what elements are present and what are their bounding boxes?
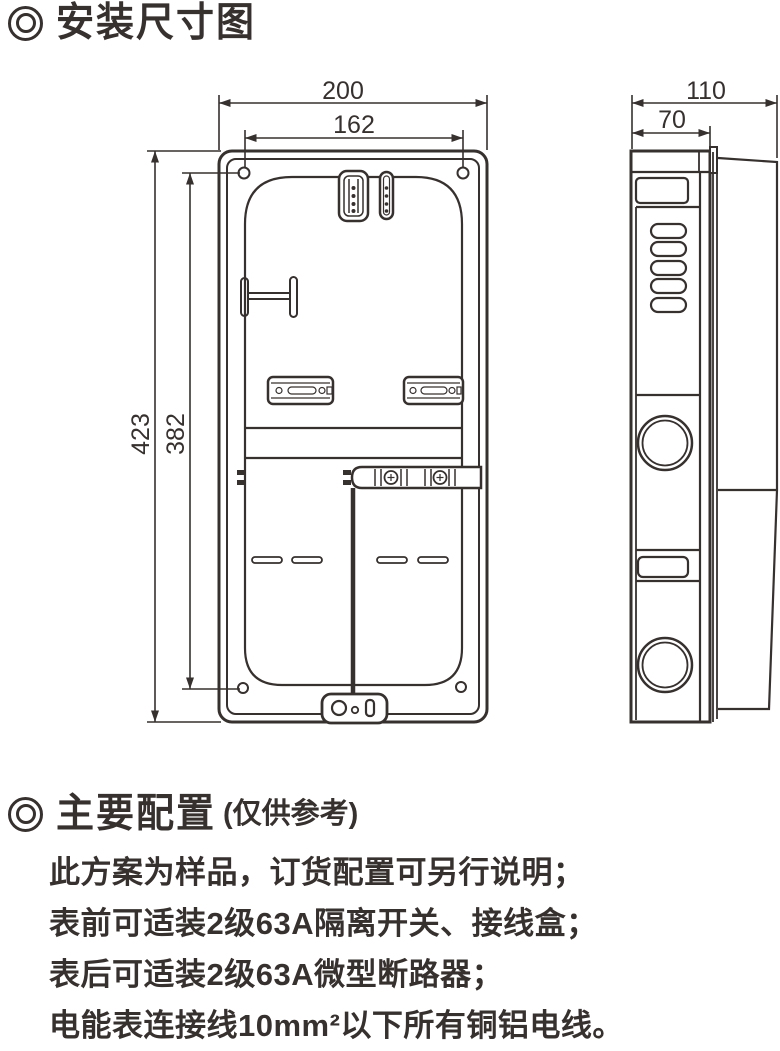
din-rail-bracket-left bbox=[268, 377, 333, 404]
terminal-rail bbox=[352, 467, 481, 488]
side-slot bbox=[638, 557, 688, 577]
config-notes: 此方案为样品，订货配置可另行说明； 表前可适装2级63A隔离开关、接线盒； 表后… bbox=[49, 847, 749, 1051]
config-title: 主要配置 bbox=[56, 794, 216, 834]
dim-front-width-inner: 162 bbox=[333, 111, 375, 139]
cable-gland-bottom bbox=[638, 638, 692, 692]
installation-drawing: 200 162 423 382 110 70 bbox=[0, 0, 780, 780]
cable-gland-top bbox=[638, 416, 692, 470]
dim-front-height-inner: 382 bbox=[162, 413, 190, 455]
dim-side-depth-front: 70 bbox=[658, 106, 686, 134]
side-vents bbox=[651, 224, 686, 312]
back-box bbox=[718, 158, 777, 709]
top-cable-knockout-large bbox=[339, 171, 368, 221]
meter-hanger bbox=[241, 277, 297, 317]
dim-side-depth-outer: 110 bbox=[686, 77, 726, 105]
sealing-tab bbox=[322, 694, 387, 723]
side-view bbox=[631, 147, 777, 722]
dim-front-width-outer: 200 bbox=[322, 77, 364, 105]
top-cable-knockout-small bbox=[380, 172, 393, 219]
config-line-3: 表后可适装2级63A微型断路器； bbox=[49, 949, 749, 1000]
config-line-2: 表前可适装2级63A隔离开关、接线盒； bbox=[49, 898, 749, 949]
config-title-row: 主要配置 (仅供参考) bbox=[8, 795, 358, 833]
config-title-note: (仅供参考) bbox=[223, 800, 358, 829]
config-line-4: 电能表连接线10mm²以下所有铜铝电线。 bbox=[49, 1000, 749, 1051]
knockout-dashes bbox=[252, 557, 448, 563]
config-line-1: 此方案为样品，订货配置可另行说明； bbox=[49, 847, 749, 898]
dim-front-height-outer: 423 bbox=[127, 413, 155, 455]
bullseye-icon bbox=[8, 797, 43, 832]
front-view bbox=[219, 151, 487, 723]
din-rail-bracket-right bbox=[404, 377, 463, 404]
